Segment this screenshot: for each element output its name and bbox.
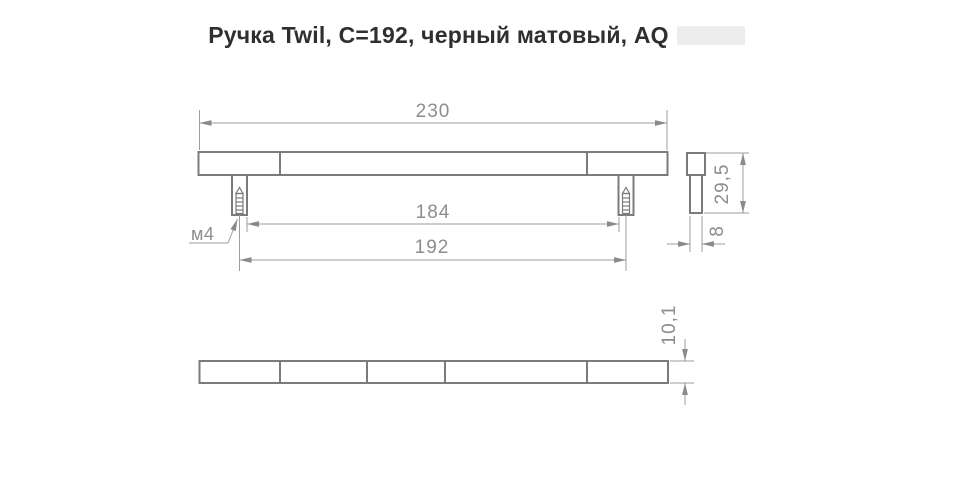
handle-drawing: 230 184 192 м4 [0,0,953,503]
front-view: 230 184 192 м4 [189,101,668,271]
dim-total-height-value: 29,5 [712,164,733,205]
plan-bar [200,361,669,383]
thread-label: м4 [189,219,238,244]
side-bar-section [687,153,705,175]
dim-bar-thickness: 10,1 [659,305,694,405]
dim-bar-width: 8 [667,216,728,252]
thread-label-value: м4 [191,224,214,244]
side-post [690,175,702,213]
dim-overall-length-value: 230 [416,101,451,122]
dim-mounting-distance-value: 192 [415,237,450,258]
dim-total-height: 29,5 [704,153,749,213]
side-view: 29,5 8 [667,153,749,252]
left-post [232,175,247,215]
thread-label-leader [228,219,238,243]
right-post [619,175,634,215]
dim-bar-width-value: 8 [707,225,728,237]
technical-drawing-page: Ручка Twil, C=192, черный матовый, AQ [0,0,953,503]
dim-bar-thickness-value: 10,1 [659,305,680,346]
dim-overall-length: 230 [200,101,668,150]
dim-inner-distance: 184 [247,202,619,232]
front-bar [199,152,668,175]
plan-view: 10,1 [200,305,695,405]
dim-mounting-distance: 192 [240,215,627,271]
dim-inner-distance-value: 184 [416,202,451,223]
